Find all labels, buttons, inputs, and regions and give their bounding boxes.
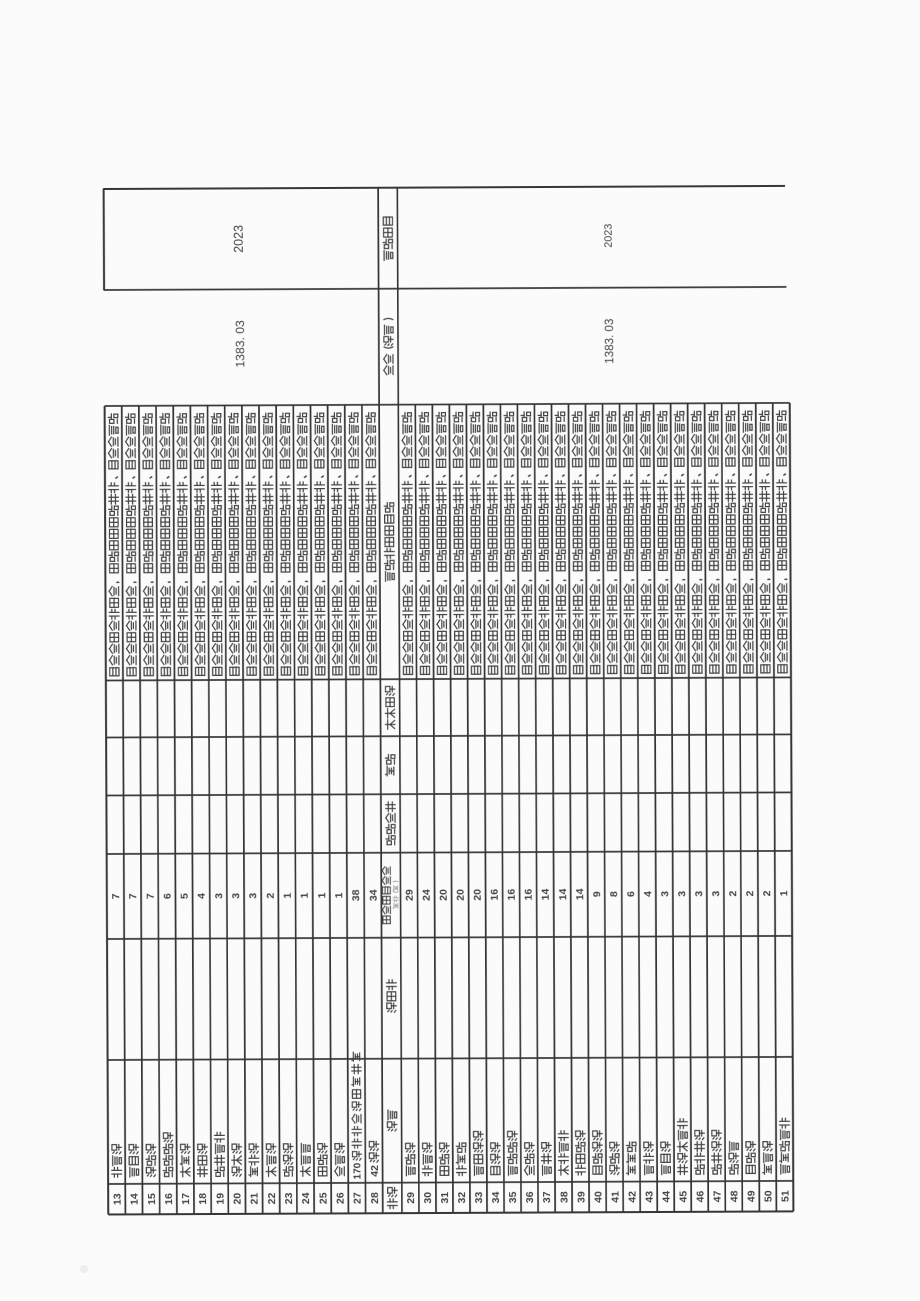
svg-text:51: 51 [780,1190,792,1202]
svg-text:42: 42 [369,1165,381,1177]
svg-text:31: 31 [439,1192,451,1204]
svg-text:3: 3 [213,893,225,899]
svg-text:21: 21 [249,1193,261,1205]
svg-text:30: 30 [422,1192,434,1204]
svg-text:33: 33 [473,1192,485,1204]
svg-text:25: 25 [317,1192,329,1204]
svg-text:18: 18 [197,1193,209,1205]
svg-text:49: 49 [746,1190,758,1202]
svg-text:16: 16 [506,889,518,901]
svg-text:3: 3 [710,891,722,897]
svg-text:43: 43 [643,1191,655,1203]
svg-text:22: 22 [266,1192,278,1204]
svg-text:35: 35 [507,1191,519,1203]
svg-text:26: 26 [335,1192,347,1204]
svg-text:20: 20 [232,1193,244,1205]
svg-text:34: 34 [367,889,379,901]
svg-text:9: 9 [591,891,603,897]
svg-text:1: 1 [778,890,790,896]
svg-text:3: 3 [693,891,705,897]
svg-text:2: 2 [265,893,277,899]
svg-text:20: 20 [472,889,484,901]
svg-text:38: 38 [350,889,362,901]
svg-text:1383. 03: 1383. 03 [233,320,247,368]
svg-text:1: 1 [316,892,328,898]
svg-text:44: 44 [660,1191,672,1203]
svg-text:40: 40 [592,1191,604,1203]
svg-text:2: 2 [744,890,756,896]
svg-text:29: 29 [405,1192,417,1204]
svg-text:2: 2 [727,891,739,897]
svg-text:50: 50 [763,1190,775,1202]
svg-text:45: 45 [677,1191,689,1203]
svg-text:2023: 2023 [232,225,246,253]
svg-text:14: 14 [129,1193,141,1205]
svg-text:32: 32 [456,1192,468,1204]
svg-text:34: 34 [490,1191,502,1203]
svg-text:23: 23 [283,1192,295,1204]
svg-text:13: 13 [112,1193,124,1205]
svg-text:42: 42 [626,1191,638,1203]
svg-text:3: 3 [676,891,688,897]
svg-text:28: 28 [369,1192,381,1204]
svg-text:14: 14 [557,888,569,900]
svg-text:41: 41 [609,1191,621,1203]
svg-text:1: 1 [299,892,311,898]
svg-text:16: 16 [163,1193,175,1205]
svg-text:17: 17 [180,1193,192,1205]
svg-text:1: 1 [282,893,294,899]
svg-text:3: 3 [247,893,259,899]
svg-text:37: 37 [541,1191,553,1203]
svg-text:14: 14 [540,888,552,900]
svg-text:7: 7 [127,893,139,899]
svg-text:1: 1 [333,892,345,898]
svg-text:20: 20 [438,889,450,901]
svg-text:24: 24 [421,889,433,901]
svg-text:6: 6 [625,891,637,897]
svg-text:29: 29 [404,889,416,901]
svg-text:39: 39 [575,1191,587,1203]
svg-text:20: 20 [455,889,467,901]
svg-text:3: 3 [230,893,242,899]
svg-text:2: 2 [761,890,773,896]
svg-text:47: 47 [712,1190,724,1202]
svg-text:7: 7 [144,893,156,899]
svg-text:3: 3 [659,891,671,897]
svg-text:8: 8 [608,891,620,897]
svg-text:5: 5 [179,893,191,899]
svg-text:14: 14 [574,888,586,900]
svg-text:27: 27 [352,1192,364,1204]
svg-text:170: 170 [352,1162,363,1179]
svg-text:48: 48 [729,1190,741,1202]
svg-text:16: 16 [489,889,501,901]
svg-text:15: 15 [146,1193,158,1205]
svg-text:4: 4 [642,891,654,897]
svg-text:19: 19 [214,1193,226,1205]
svg-text:1383. 03: 1383. 03 [603,319,616,364]
svg-text:36: 36 [524,1191,536,1203]
svg-text:4: 4 [196,893,208,899]
svg-text:2023: 2023 [603,224,615,248]
svg-text:6: 6 [162,893,174,899]
svg-text:7: 7 [110,893,122,899]
svg-text:24: 24 [300,1192,312,1204]
svg-text:38: 38 [558,1191,570,1203]
svg-text:46: 46 [694,1191,706,1203]
svg-text:16: 16 [523,889,535,901]
